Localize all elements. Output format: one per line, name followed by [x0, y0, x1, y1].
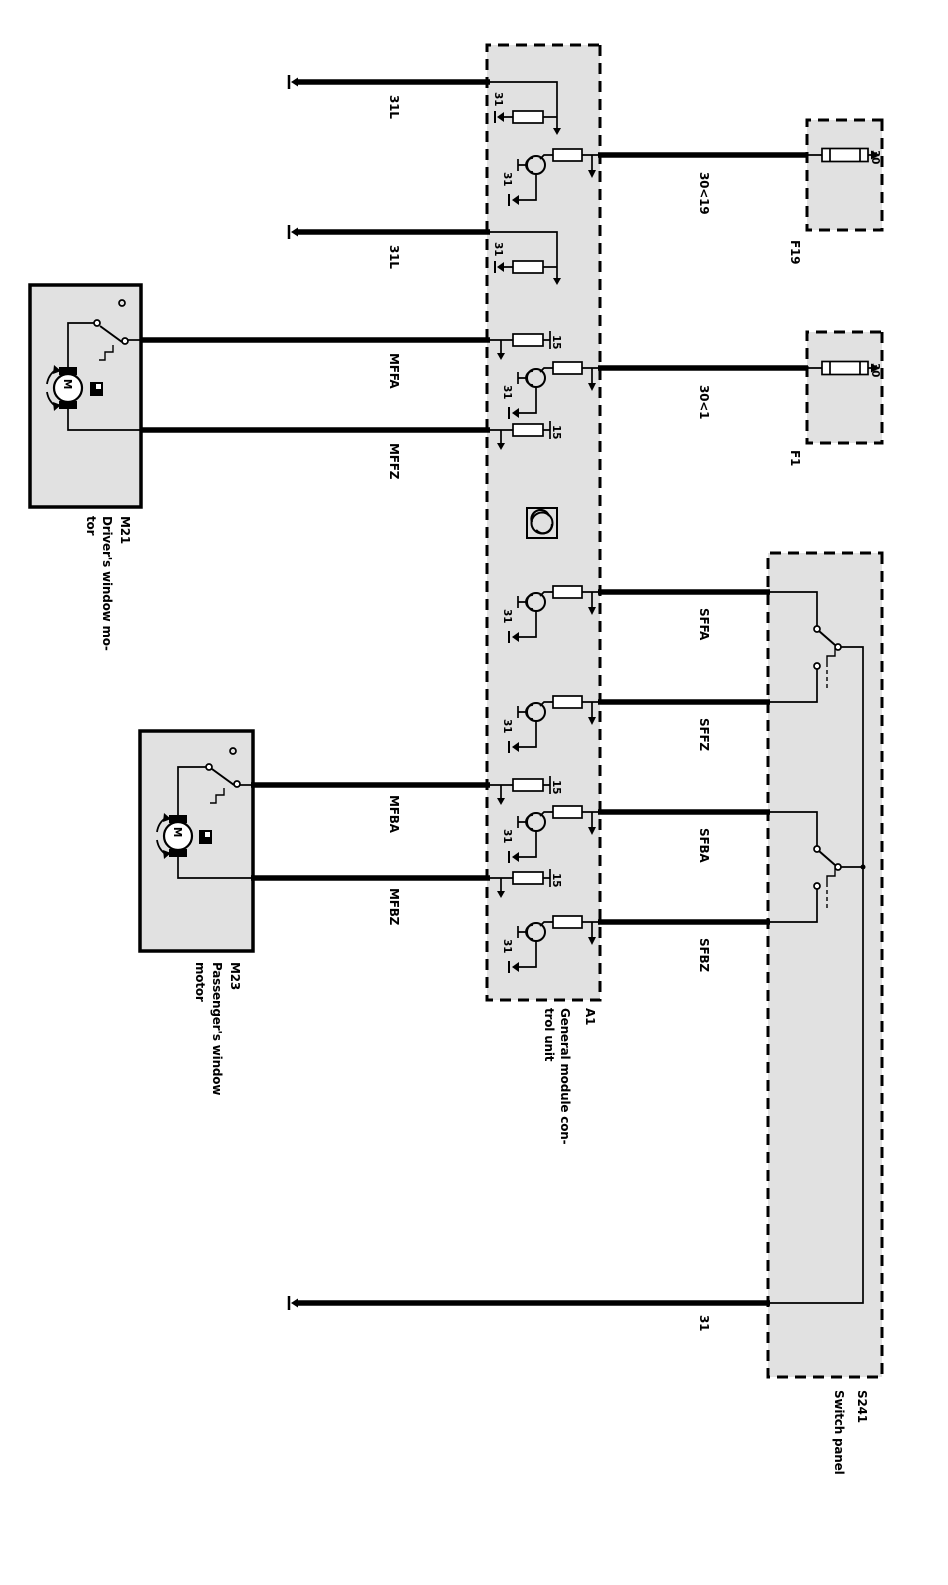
f19-fuse-box	[807, 120, 882, 230]
wire-label-31l-a: 31L	[387, 95, 401, 119]
switch-contact	[814, 883, 820, 889]
m21-id-label: M21	[118, 516, 132, 544]
junction-dot	[861, 865, 866, 870]
switch-contact	[122, 338, 128, 344]
pin-31: 31	[501, 829, 513, 843]
s241-id-label: S241	[855, 1390, 869, 1423]
a1-name-line2: trol unit	[542, 1008, 556, 1062]
pin-31: 31	[501, 719, 513, 733]
s241-switch-panel-box	[768, 553, 882, 1377]
harness-wires	[140, 82, 808, 1303]
m21-motor-letter: M	[61, 379, 73, 389]
pin-31: 31	[501, 609, 513, 623]
f19-id-label: F19	[788, 240, 802, 264]
pin-31: 31	[501, 939, 513, 953]
pin-15: 15	[550, 873, 562, 887]
switch-contact	[94, 320, 100, 326]
switch-common-contact	[835, 644, 841, 650]
wire-label-sffa: SFFA	[697, 608, 711, 641]
m23-id-label: M23	[228, 962, 242, 990]
wire-label-mffa: MFFA	[387, 353, 401, 389]
wire-label-sfba: SFBA	[697, 828, 711, 863]
wire-label-30-19: 30<19	[697, 172, 711, 214]
m21-name-line1: Driver's window mo-	[100, 516, 114, 651]
wiring-diagram: 31L 31L MFFA MFFZ MFBA MFBZ 30<19 30<1 S…	[0, 0, 948, 1585]
pin-31: 31	[501, 385, 513, 399]
switch-contact	[814, 663, 820, 669]
wire-end-terminal	[289, 75, 298, 89]
pin-15: 15	[550, 425, 562, 439]
switch-common-contact	[835, 864, 841, 870]
switch-contact	[206, 764, 212, 770]
m21-motor-box	[30, 285, 141, 507]
a1-name-line1: General module con-	[558, 1008, 572, 1145]
pin-30: 30	[869, 363, 881, 377]
wire-label-mffz: MFFZ	[387, 443, 401, 480]
component-boxes	[30, 45, 882, 1377]
f1-id-label: F1	[788, 450, 802, 466]
m23-name-line2: motor	[193, 962, 207, 1002]
wire-label-sffz: SFFZ	[697, 718, 711, 751]
wire-label-sfbz: SFBZ	[697, 938, 711, 972]
pin-15: 15	[550, 335, 562, 349]
a1-control-unit-box	[487, 45, 600, 1000]
m23-name-line1: Passenger's window	[210, 962, 224, 1095]
m21-name-line2: tor	[84, 516, 98, 536]
schematic-canvas: 31L 31L MFFA MFFZ MFBA MFBZ 30<19 30<1 S…	[0, 0, 948, 1585]
pin-31: 31	[501, 172, 513, 186]
wire-label-mfbz: MFBZ	[387, 888, 401, 926]
thermal-protector-notch	[205, 832, 210, 837]
m23-motor-letter: M	[171, 827, 183, 837]
pin-15: 15	[550, 780, 562, 794]
a1-id-label: A1	[583, 1008, 597, 1025]
switch-contact	[234, 781, 240, 787]
pin-31: 31	[492, 242, 504, 256]
thermal-protector-notch	[96, 384, 101, 389]
pin-30: 30	[869, 150, 881, 164]
wire-end-terminal	[289, 225, 298, 239]
f1-fuse-box	[807, 332, 882, 443]
wire-label-31: 31	[697, 1315, 711, 1331]
wire-label-30-1: 30<1	[697, 385, 711, 419]
wire-end-terminal	[289, 1296, 298, 1310]
wire-label-mfba: MFBA	[387, 795, 401, 834]
pin-31: 31	[492, 92, 504, 106]
wire-label-31l-b: 31L	[387, 245, 401, 269]
s241-name-label: Switch panel	[832, 1390, 846, 1475]
